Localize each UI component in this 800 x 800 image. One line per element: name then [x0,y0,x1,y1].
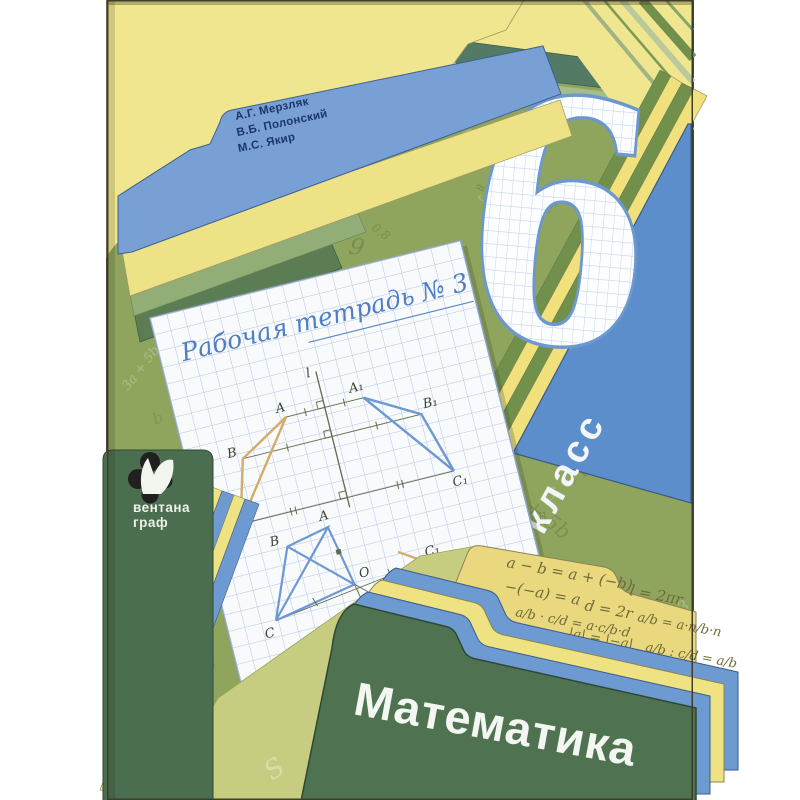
book-cover-photo: 3,212MON∠ABC0,8189,39SC1203a + 5bmxπD80,… [0,0,800,800]
publisher-name-line2: граф [133,515,168,530]
publisher-name-line1: вентана [133,500,190,515]
publisher-panel: вентана граф [103,450,213,800]
